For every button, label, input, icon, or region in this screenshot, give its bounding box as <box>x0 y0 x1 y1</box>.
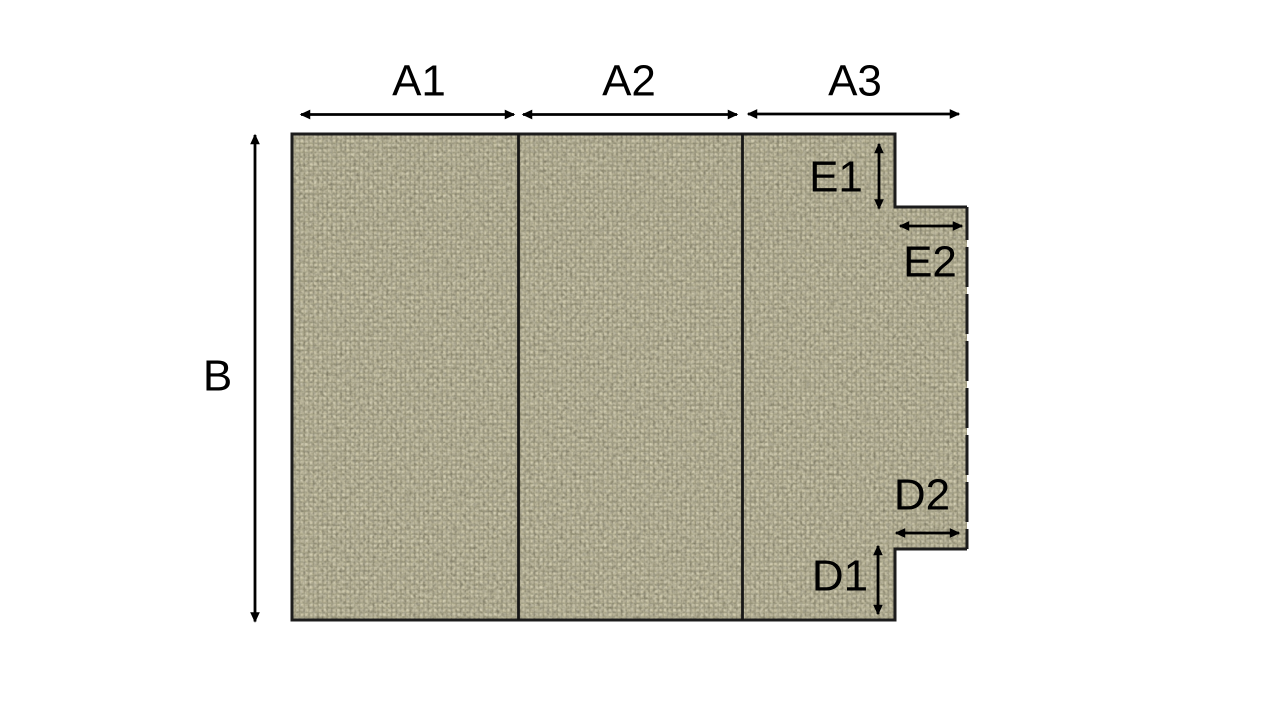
svg-text:E2: E2 <box>903 238 957 287</box>
svg-text:D2: D2 <box>894 471 950 520</box>
svg-text:A1: A1 <box>392 57 446 106</box>
svg-text:A2: A2 <box>602 57 656 106</box>
svg-text:D1: D1 <box>812 552 868 601</box>
svg-text:E1: E1 <box>809 153 863 202</box>
svg-text:A3: A3 <box>828 57 882 106</box>
svg-text:B: B <box>203 352 232 401</box>
